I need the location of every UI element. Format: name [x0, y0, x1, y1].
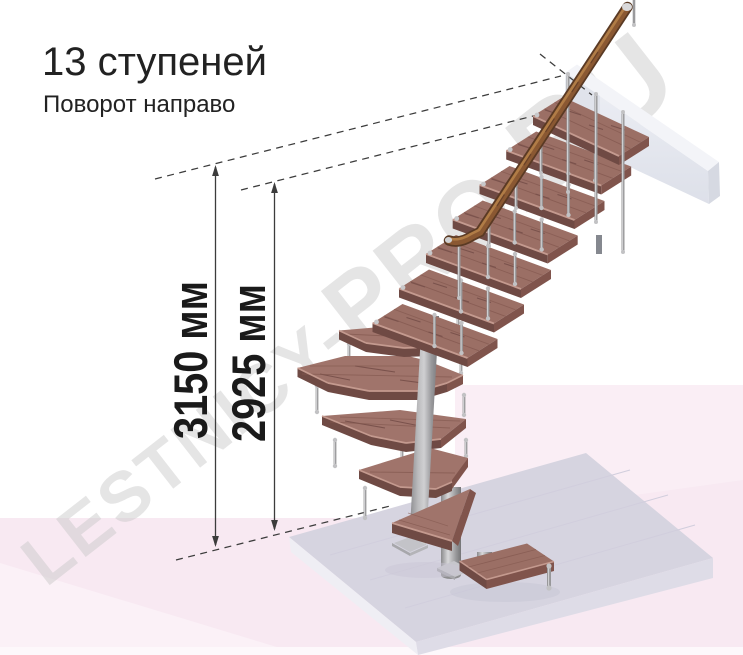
svg-text:2925 мм: 2925 мм	[222, 284, 275, 442]
svg-text:3150 мм: 3150 мм	[164, 281, 217, 439]
svg-text:13 ступеней: 13 ступеней	[42, 40, 267, 84]
svg-text:Поворот направо: Поворот направо	[43, 91, 235, 118]
